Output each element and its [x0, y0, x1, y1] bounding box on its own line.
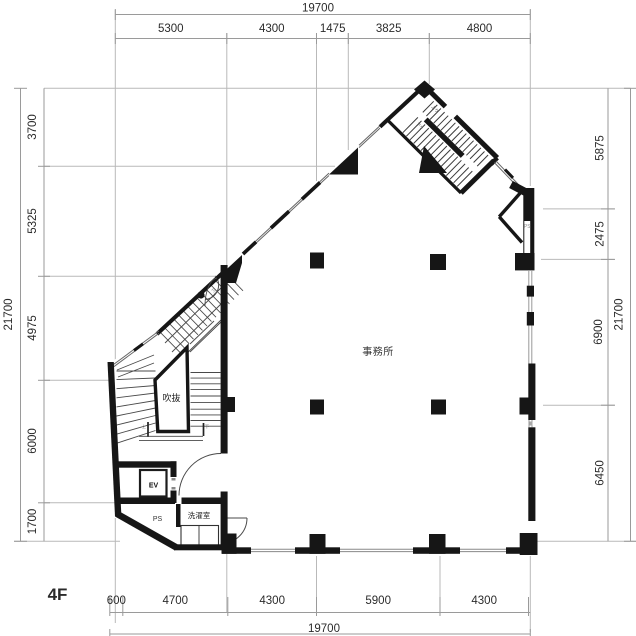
svg-text:4700: 4700 [163, 595, 189, 607]
svg-text:事務所: 事務所 [362, 345, 394, 358]
svg-text:4975: 4975 [27, 315, 39, 341]
svg-text:3700: 3700 [27, 114, 39, 140]
svg-text:19700: 19700 [302, 3, 334, 15]
svg-text:PS: PS [153, 516, 163, 523]
svg-text:5325: 5325 [27, 208, 39, 234]
svg-text:5875: 5875 [595, 135, 607, 161]
svg-text:1475: 1475 [320, 23, 346, 35]
svg-text:5300: 5300 [158, 23, 184, 35]
svg-text:600: 600 [107, 595, 126, 607]
svg-text:4300: 4300 [471, 595, 497, 607]
svg-text:EV: EV [149, 483, 159, 490]
svg-text:6900: 6900 [593, 319, 605, 345]
svg-text:21700: 21700 [614, 299, 626, 331]
svg-text:上: 上 [142, 423, 146, 429]
svg-text:洗濯室: 洗濯室 [188, 510, 211, 520]
svg-text:PS: PS [524, 224, 531, 230]
svg-text:6000: 6000 [27, 428, 39, 454]
svg-text:2475: 2475 [595, 221, 607, 247]
svg-text:21700: 21700 [3, 299, 15, 331]
svg-text:4F: 4F [48, 585, 68, 604]
svg-text:3825: 3825 [376, 23, 402, 35]
svg-text:1700: 1700 [27, 509, 39, 535]
svg-text:吹抜: 吹抜 [162, 392, 180, 403]
svg-text:4300: 4300 [259, 595, 285, 607]
svg-text:4300: 4300 [259, 23, 285, 35]
svg-text:5900: 5900 [365, 595, 391, 607]
svg-text:下: 下 [205, 424, 209, 429]
svg-text:6450: 6450 [595, 460, 607, 486]
svg-text:19700: 19700 [308, 623, 340, 635]
svg-text:4800: 4800 [467, 23, 493, 35]
